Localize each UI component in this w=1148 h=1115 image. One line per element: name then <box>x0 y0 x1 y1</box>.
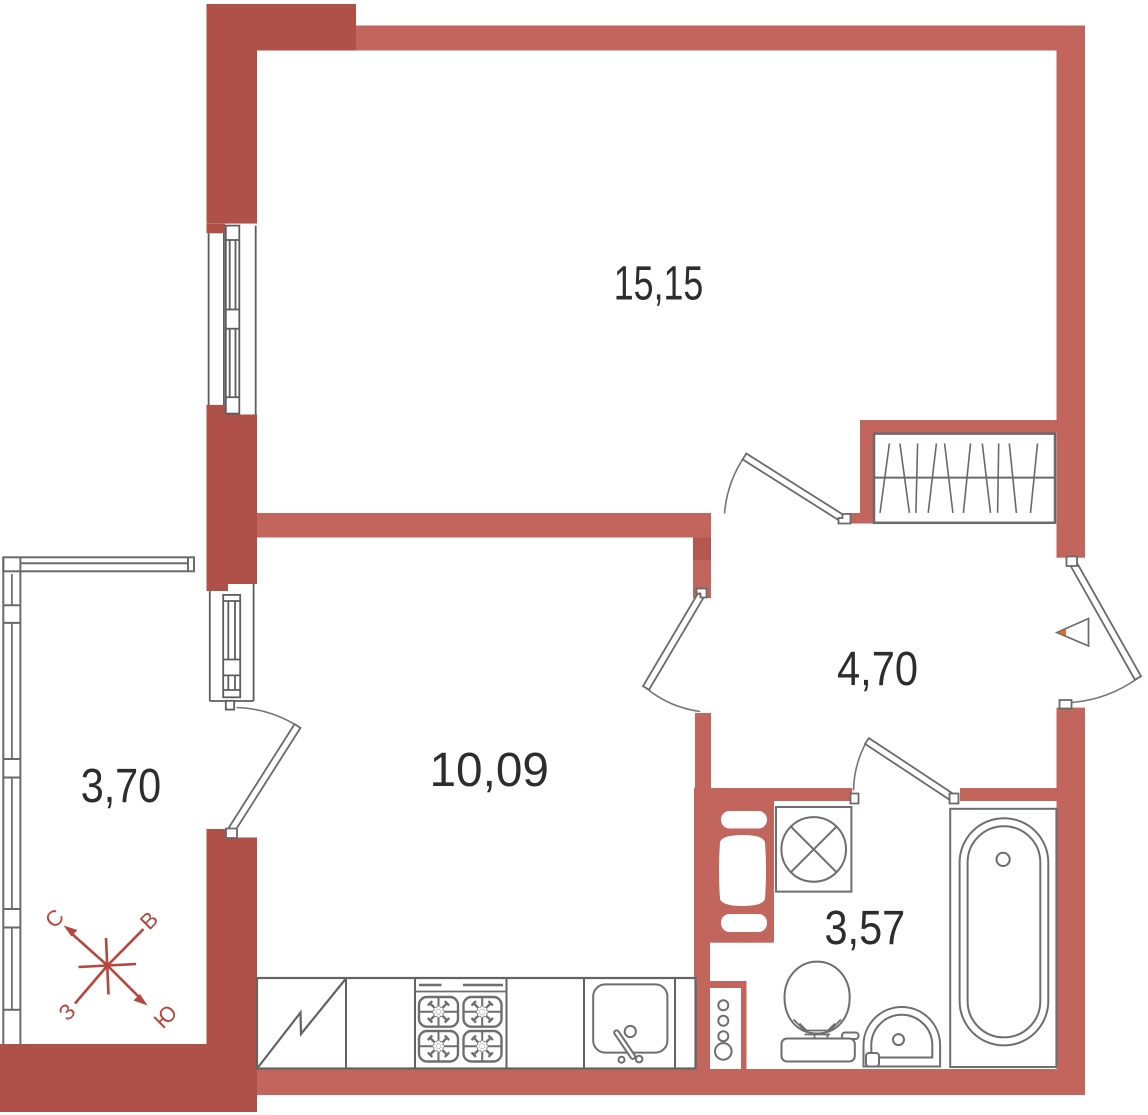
svg-text:3,57: 3,57 <box>825 902 906 955</box>
svg-text:3,70: 3,70 <box>81 760 162 813</box>
svg-text:15,15: 15,15 <box>614 258 704 311</box>
svg-text:4,70: 4,70 <box>837 643 918 696</box>
svg-text:10,09: 10,09 <box>430 744 550 797</box>
